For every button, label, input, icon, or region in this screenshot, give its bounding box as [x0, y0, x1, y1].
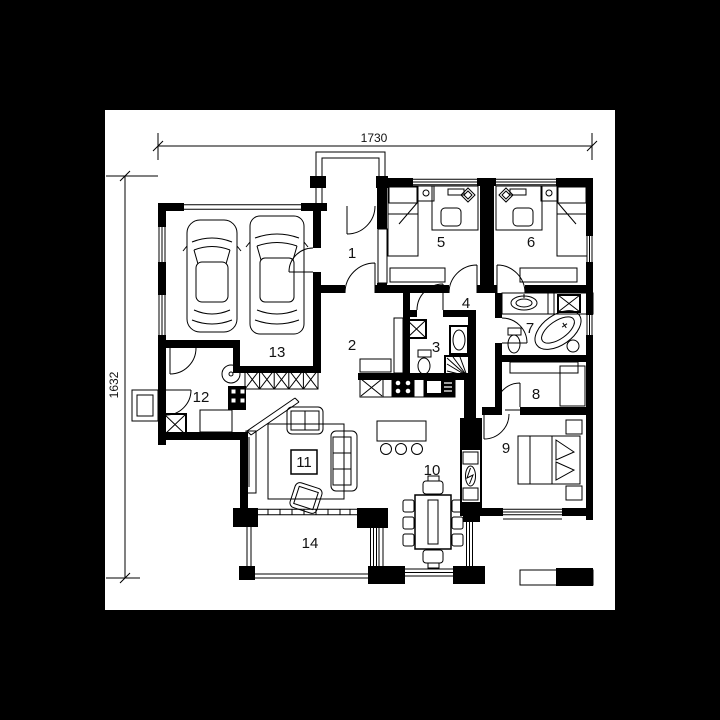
dimension-vertical-label: 1632 [107, 371, 121, 398]
room-label-9: 9 [502, 440, 510, 457]
room-label-6: 6 [527, 234, 535, 251]
room-label-5: 5 [437, 234, 445, 251]
room-label-1: 1 [348, 245, 356, 262]
room-label-10: 10 [424, 462, 441, 479]
room-label-8: 8 [532, 386, 540, 403]
room-label-4: 4 [462, 295, 470, 312]
floor-plan-drawing: 1730 1632 [0, 0, 720, 720]
room-label-2: 2 [348, 337, 356, 354]
room-label-7: 7 [526, 320, 534, 337]
room-label-12: 12 [193, 389, 210, 406]
stove-icon [392, 378, 414, 397]
dimension-horizontal-label: 1730 [361, 131, 388, 145]
fireplace-icon [462, 450, 480, 502]
screenshot-canvas: 1730 1632 [0, 0, 720, 720]
room-label-13: 13 [269, 344, 286, 361]
room-label-3: 3 [432, 339, 440, 356]
room-label-11: 11 [296, 454, 312, 471]
room-label-14: 14 [302, 535, 319, 552]
